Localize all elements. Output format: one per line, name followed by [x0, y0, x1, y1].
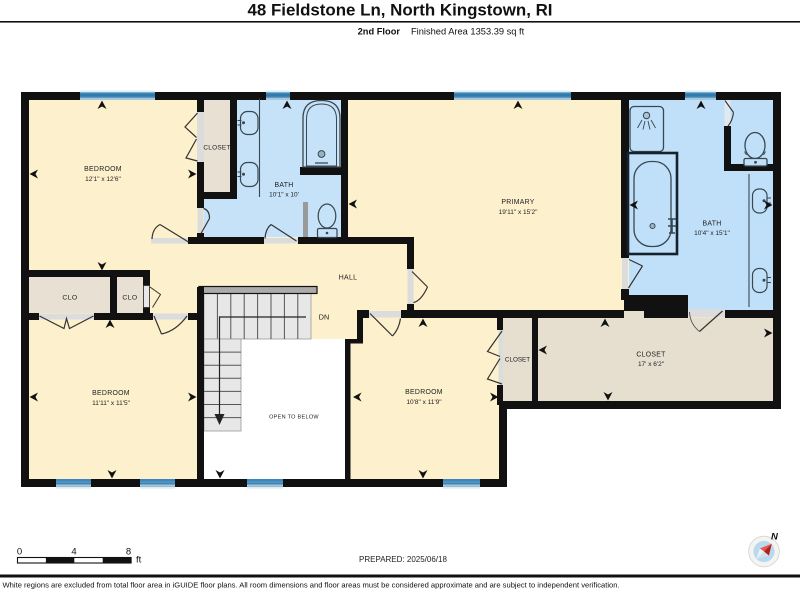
- svg-text:12'1" x 12'6": 12'1" x 12'6": [85, 176, 121, 183]
- svg-text:White regions are excluded fro: White regions are excluded from total fl…: [3, 580, 620, 589]
- svg-text:19'11" x 15'2": 19'11" x 15'2": [499, 209, 538, 216]
- svg-text:8: 8: [126, 547, 131, 558]
- svg-text:0: 0: [17, 547, 22, 558]
- svg-text:11'11" x 11'5": 11'11" x 11'5": [92, 400, 131, 407]
- svg-text:48 Fieldstone Ln, North Kingst: 48 Fieldstone Ln, North Kingstown, RI: [248, 1, 553, 20]
- svg-text:10'4" x 15'1": 10'4" x 15'1": [694, 230, 730, 237]
- svg-text:10'8" x 11'9": 10'8" x 11'9": [406, 399, 442, 406]
- svg-text:N: N: [771, 532, 779, 543]
- svg-text:Finished Area 1353.39 sq ft: Finished Area 1353.39 sq ft: [411, 27, 525, 37]
- svg-text:CLOSET: CLOSET: [203, 145, 230, 152]
- svg-text:DN: DN: [319, 313, 329, 322]
- svg-text:17' x 6'2": 17' x 6'2": [638, 361, 665, 368]
- svg-text:10'1" x 10': 10'1" x 10': [269, 192, 299, 199]
- svg-text:HALL: HALL: [339, 275, 357, 282]
- svg-text:CLOSET: CLOSET: [505, 357, 530, 364]
- svg-text:CLO: CLO: [62, 295, 77, 302]
- svg-text:2nd Floor: 2nd Floor: [358, 27, 401, 37]
- svg-text:OPEN TO BELOW: OPEN TO BELOW: [269, 415, 319, 421]
- svg-text:BEDROOM: BEDROOM: [84, 166, 122, 173]
- svg-text:BEDROOM: BEDROOM: [92, 390, 130, 397]
- svg-text:CLOSET: CLOSET: [636, 352, 666, 359]
- svg-text:BEDROOM: BEDROOM: [405, 389, 443, 396]
- svg-text:BATH: BATH: [702, 221, 721, 228]
- svg-text:4: 4: [71, 547, 76, 558]
- svg-text:CLO: CLO: [122, 295, 137, 302]
- svg-text:PRIMARY: PRIMARY: [501, 199, 534, 206]
- svg-text:PREPARED: 2025/06/18: PREPARED: 2025/06/18: [359, 555, 447, 564]
- svg-text:ft: ft: [136, 555, 142, 566]
- svg-text:BATH: BATH: [274, 182, 293, 189]
